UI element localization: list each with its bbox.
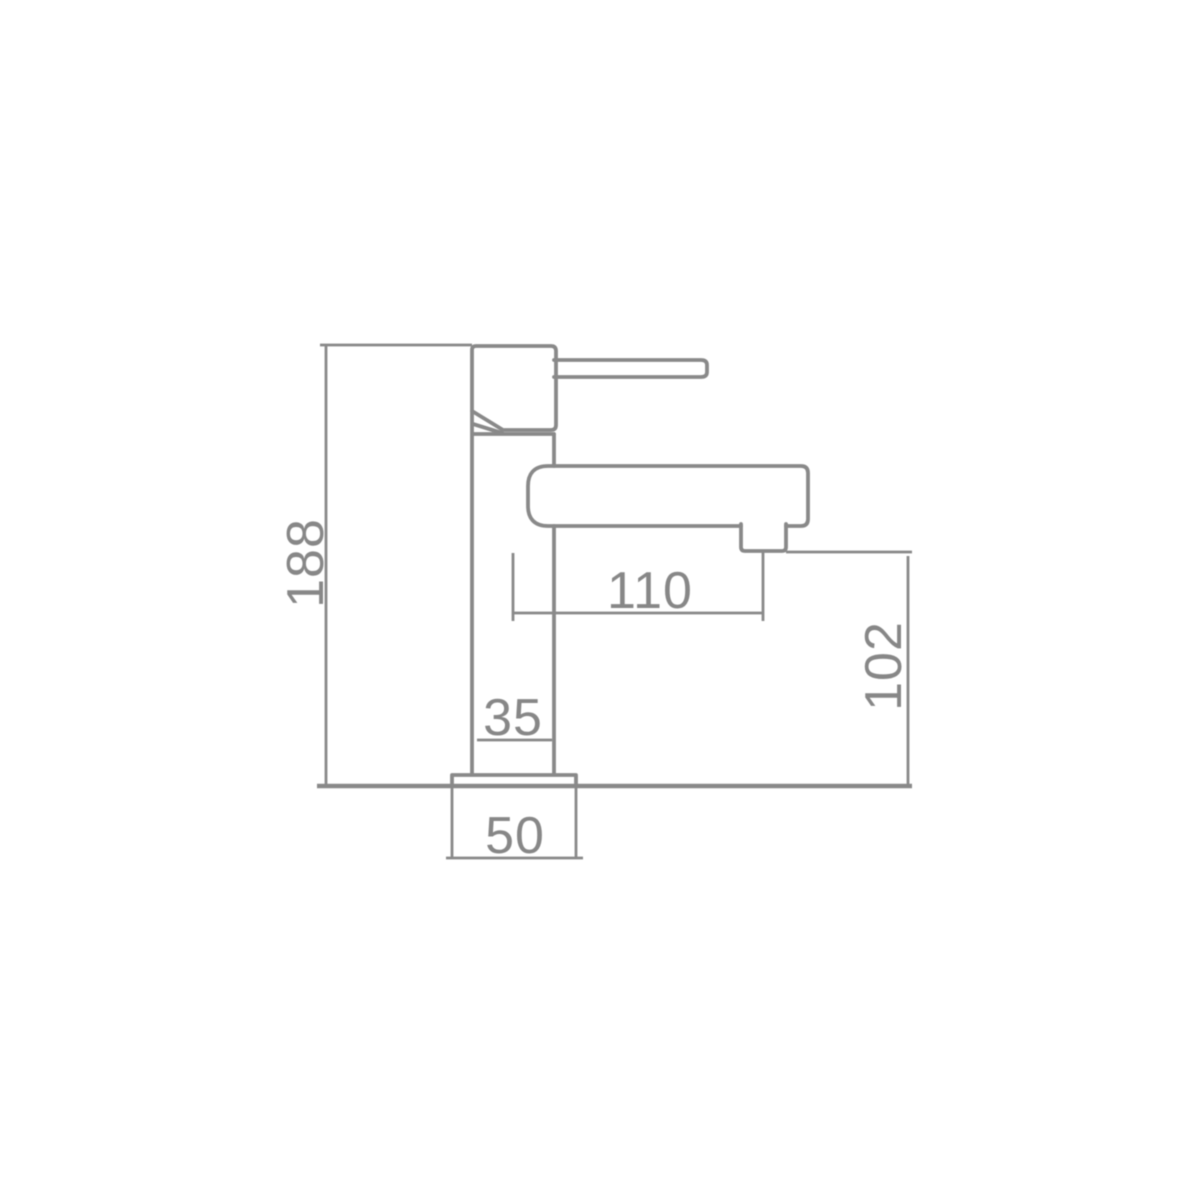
handle-body [472, 346, 556, 430]
dimension-label-base-width: 50 [485, 807, 545, 865]
dimension-labels-group: 188 110 102 35 50 [277, 518, 913, 865]
dimension-label-body-width: 35 [483, 689, 543, 747]
lever-bar [554, 360, 707, 377]
faucet-technical-drawing: 188 110 102 35 50 [0, 0, 1200, 1200]
dimension-label-outlet-height: 102 [855, 621, 913, 711]
dimension-label-overall-height: 188 [277, 518, 335, 608]
spout-outlet [741, 524, 786, 551]
page-background: 188 110 102 35 50 [0, 0, 1200, 1200]
spout [528, 466, 808, 526]
dimension-label-spout-reach: 110 [607, 562, 693, 620]
